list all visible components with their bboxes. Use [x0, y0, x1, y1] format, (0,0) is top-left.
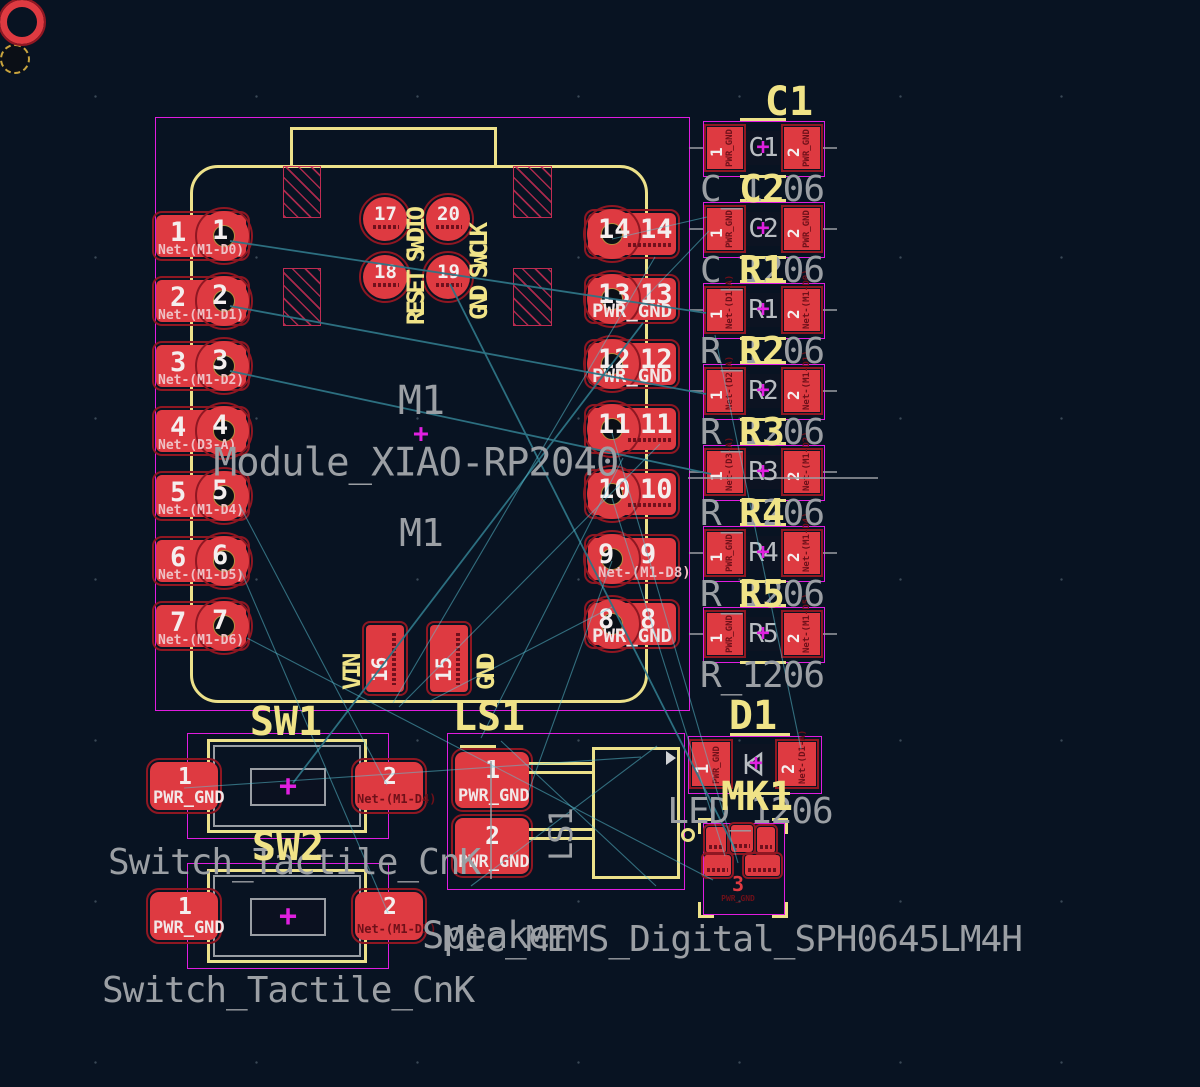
pad-net-label: PWR_GND	[153, 920, 225, 937]
pad-net-label: Net-(D2-A)	[726, 373, 735, 410]
ref-text-r4[interactable]: R4	[739, 494, 785, 532]
module-value-text[interactable]: Module_XIAO-RP2040	[214, 444, 619, 483]
ref-text-d1[interactable]: D1	[729, 696, 777, 736]
module-usb-tab-outline	[290, 127, 497, 168]
pad-net-label: Net-(M1-D4)	[158, 504, 244, 517]
pad-number: 1	[178, 766, 192, 789]
micro-net-text	[628, 438, 672, 442]
diode-polarity-marker	[666, 751, 676, 765]
pad-number: 1	[709, 544, 725, 562]
micro-net-text	[628, 243, 672, 247]
micro-net-text	[707, 868, 728, 872]
pad-number: 1	[170, 219, 186, 246]
micro-net-text	[709, 845, 723, 849]
fab-line	[823, 147, 837, 149]
keepout-zone	[513, 166, 552, 218]
silk-line	[460, 745, 496, 748]
SW2-anchor-cross: +	[279, 902, 297, 932]
pad-number: 1	[709, 301, 725, 319]
pad-net-label: PWR_GND	[803, 130, 812, 167]
pad-number: 1	[709, 382, 725, 400]
pad-number: 1	[709, 220, 725, 238]
micro-net-text	[748, 868, 777, 872]
fab-line	[689, 147, 703, 149]
ref-text-r1[interactable]: R1	[739, 251, 785, 289]
pad-net-label: Net-(M1-D5)	[803, 616, 812, 653]
pad-number: 2	[786, 220, 802, 238]
pad-net-label: Net-(M1-D4)	[803, 535, 812, 572]
pad-number: 20	[437, 205, 460, 224]
fab-line	[823, 390, 837, 392]
pad-number: 2	[786, 301, 802, 319]
pad-number: 2	[383, 766, 397, 789]
fab-line	[823, 309, 837, 311]
pad-net-label: PWR_GND	[726, 616, 735, 653]
LS1-side-label: LS1	[545, 775, 577, 861]
ref-text-sw2[interactable]: SW2	[252, 827, 324, 867]
component-anchor-cross: +	[756, 137, 769, 159]
pad-net-label: Net-(M1-D5)	[158, 569, 244, 582]
pad-number: 2	[781, 754, 798, 774]
pad-number: 13	[598, 281, 631, 308]
pad-net-label: PWR_GND	[458, 788, 530, 805]
pad-number: 4	[212, 412, 228, 439]
fab-line	[823, 633, 837, 635]
micro-net-text	[436, 225, 462, 229]
component-anchor-cross: +	[749, 753, 762, 775]
swd-label-left: RESET SWDIO	[404, 190, 428, 325]
pad-number: 3	[212, 347, 228, 374]
micro-net-text	[392, 633, 396, 685]
MK1-pad[interactable]	[745, 855, 780, 876]
pad-number: 2	[786, 544, 802, 562]
fab-line	[823, 228, 837, 230]
fab-line	[490, 761, 492, 879]
ref-text-c2[interactable]: C2	[739, 170, 785, 208]
pad-number: 16	[370, 636, 391, 682]
pad-number: 15	[434, 636, 455, 682]
silk-corner	[785, 902, 788, 918]
pad-net-label: Net-(D1-A)	[799, 745, 808, 784]
pad-number: 18	[374, 263, 397, 282]
module-ref-text[interactable]: M1	[398, 381, 444, 421]
pad-number: 3	[170, 349, 186, 376]
keepout-zone	[513, 268, 552, 326]
pad-number: 11	[640, 411, 673, 438]
pad-number: 2	[383, 896, 397, 919]
pad-number: 1	[709, 625, 725, 643]
component-anchor-cross: +	[756, 218, 769, 240]
silk-line	[529, 771, 592, 774]
pad-number: 2	[170, 284, 186, 311]
fp-text-sw2: Switch_Tactile_CnK	[102, 973, 474, 1009]
pad-net-label: Net-(M1-D4)	[357, 793, 436, 805]
ref-text-c1[interactable]: C1	[765, 82, 813, 122]
ref-text-r2[interactable]: R2	[739, 332, 785, 370]
pad-number: 9	[640, 541, 656, 568]
pad-number: 9	[598, 541, 614, 568]
pad-net-label: Net-(M1-D1)	[803, 373, 812, 410]
pad-number: 17	[374, 205, 397, 224]
micro-net-text	[456, 633, 460, 685]
pad-number: 1	[178, 896, 192, 919]
pad-number: 2	[786, 382, 802, 400]
pad-net-label: PWR_GND	[726, 535, 735, 572]
ref-text-r3[interactable]: R3	[739, 413, 785, 451]
micro-net-text	[436, 283, 462, 287]
pad-number: 10	[640, 476, 673, 503]
fab-line	[689, 390, 703, 392]
ref-text-sw1[interactable]: SW1	[250, 702, 322, 742]
fab-line	[823, 552, 837, 554]
pad-number: 1	[709, 139, 725, 157]
ref-text-ls1[interactable]: LS1	[453, 697, 525, 737]
micro-net-text	[373, 225, 399, 229]
pad-number: 5	[170, 479, 186, 506]
pad-net-label: PWR_GND	[153, 790, 225, 807]
pad-number: 2	[212, 282, 228, 309]
pad-number: 8	[598, 606, 614, 633]
component-anchor-cross: +	[756, 542, 769, 564]
pad-number: 2	[786, 625, 802, 643]
pad-net-label: PWR_GND	[803, 211, 812, 248]
pad-net-label: PWR_GND	[726, 130, 735, 167]
fab-line	[689, 309, 703, 311]
module-anchor-cross: +	[413, 421, 429, 447]
MK1-pad-3-ring[interactable]	[0, 0, 44, 44]
pcb-editor-canvas[interactable]: M1 + Module_XIAO-RP2040 M1 RESET SWDIO G…	[0, 0, 1200, 1087]
MK1-pad[interactable]	[704, 855, 731, 876]
pad-net-label: Net-(M1-D0)	[158, 244, 244, 257]
pad-net-label: Net-(M1-D1)	[158, 309, 244, 322]
pad-net-label: Net-(D1-A)	[726, 292, 735, 329]
gnd-label: GND	[474, 628, 498, 690]
component-anchor-cross: +	[756, 461, 769, 483]
pad-number: 1	[485, 757, 500, 782]
pad-number: 7	[212, 607, 228, 634]
silk-line	[529, 762, 592, 765]
pad-number: 7	[170, 609, 186, 636]
pad-number: 6	[170, 544, 186, 571]
silk-corner	[698, 902, 701, 918]
component-anchor-cross: +	[756, 299, 769, 321]
pad-number: 11	[598, 411, 631, 438]
pad-number: 2	[786, 139, 802, 157]
fab-line	[823, 471, 837, 473]
vin-label: VIN	[340, 628, 364, 690]
swd-label-right: GND SWCLK	[467, 200, 491, 320]
pad-number: 6	[212, 542, 228, 569]
pad-number: 19	[437, 263, 460, 282]
pad-net-label: Net-(M1-D2)	[803, 454, 812, 491]
ref-text-r5[interactable]: R5	[739, 575, 785, 613]
micro-net-text	[760, 845, 772, 849]
fab-line	[689, 228, 703, 230]
pad-number: 3	[732, 874, 744, 894]
pad-number: 4	[170, 414, 186, 441]
pad-number: 12	[598, 346, 631, 373]
pad-number: 14	[598, 216, 631, 243]
fp-text-r5: R_1206	[700, 658, 824, 694]
pad-net-label: Net-(M1-D6)	[158, 634, 244, 647]
pad-net-label: Net-(M1-D0)	[803, 292, 812, 329]
pad-net-label: Net-(D3-A)	[726, 454, 735, 491]
fab-line	[689, 633, 703, 635]
SW1-anchor-cross: +	[279, 772, 297, 802]
fab-line	[689, 471, 703, 473]
fab-line	[688, 477, 878, 479]
micro-net-text	[373, 283, 399, 287]
fab-line	[689, 552, 703, 554]
pad-number: 14	[640, 216, 673, 243]
ref-text-mk1[interactable]: MK1	[721, 777, 793, 817]
fp-text-ls1: Speaker	[422, 917, 571, 954]
pad-number: 1	[695, 754, 712, 774]
MK1-pad-3-mask	[0, 44, 30, 74]
pad-net-label: PWR_GND	[721, 895, 755, 903]
component-anchor-cross: +	[756, 380, 769, 402]
micro-net-text	[628, 503, 672, 507]
pad-number: 2	[485, 823, 500, 848]
keepout-zone	[283, 166, 321, 218]
pad-number: 1	[212, 217, 228, 244]
pad-net-label: Net-(M1-D2)	[158, 374, 244, 387]
keepout-zone	[283, 268, 321, 326]
micro-net-text	[734, 844, 750, 848]
module-ref2-text[interactable]: M1	[399, 514, 443, 552]
component-anchor-cross: +	[756, 623, 769, 645]
pad-net-label: PWR_GND	[726, 211, 735, 248]
